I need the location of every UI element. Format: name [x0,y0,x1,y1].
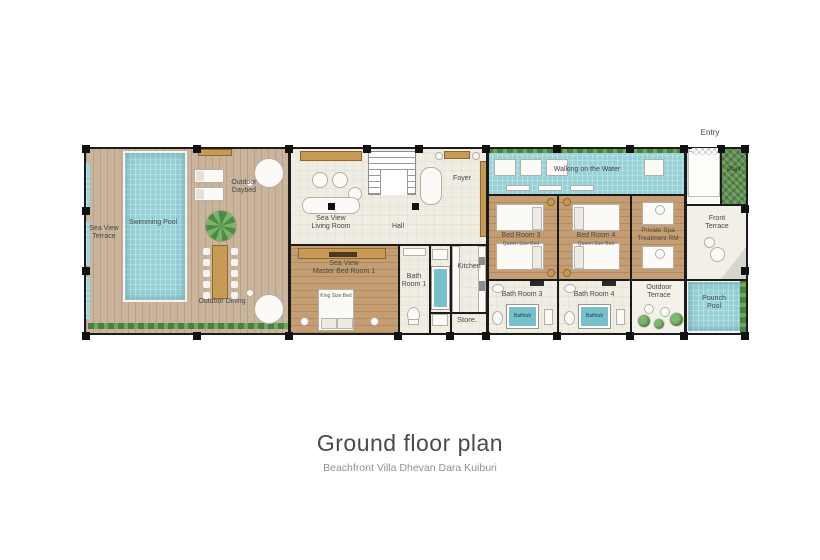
private-spa-line2: Treatment RM [634,235,682,243]
bedroom3-bed-label: Queen Size Bed [492,242,550,248]
hedge-top [487,149,684,153]
caption-block: Ground floor plan Beachfront Villa Dheva… [0,430,820,474]
private-spa-line1: Private Spa [634,227,682,235]
pounch-pool-label: Pounch Pool [690,295,738,312]
master-bedroom-label: Sea View Master Bed Room 1 [292,260,396,277]
front-terrace-line2: Terrace [692,223,742,231]
column-icon [412,203,419,210]
bathtub-text: Bathtub [509,314,536,320]
bedside-table-icon [563,269,571,277]
plant-bed [722,149,746,205]
foyer-cabinet-icon [444,151,470,159]
front-terrace-line1: Front [692,215,742,223]
floor-plan-page: Entry Swimming Pool Sea View Terrace Out… [0,0,820,560]
bathtub-label: Bathtub [509,314,536,320]
kitchen-counter-left-icon [452,246,460,314]
bath4-label: Bath Room 4 [564,291,624,299]
water-mat-icon [570,185,594,191]
outdoor-terrace-label: Outdoor Terrace [634,284,684,301]
shower-icon [544,309,553,325]
plant-text: Plant [722,167,746,174]
king-bed-text: King Size Bed [320,294,352,300]
wall [430,312,487,314]
door-leaf-icon [602,281,616,286]
plant-pot-icon [654,319,664,329]
shower-icon [432,249,448,260]
bedroom3-bed-text: Queen Size Bed [492,242,550,248]
wall [557,195,559,333]
bathtub-icon [432,267,449,309]
vanity-icon [403,248,426,256]
plant-pot-icon [670,313,683,326]
face-hole [655,249,665,259]
console-cabinet-icon [300,151,362,161]
sea-view-terrace-label: Sea View Terrace [87,225,121,242]
sun-lounger-icon [194,187,224,201]
wall [486,279,746,281]
floor-plan: Swimming Pool Sea View Terrace Outdoor D… [84,147,748,335]
wardrobe-detail [329,252,357,257]
walking-on-water-text: Walking on the Water [534,166,640,174]
wall [684,149,687,333]
living-room-line1: Sea View [296,215,366,223]
entry-platform [688,151,720,197]
store-text: Store. [446,315,488,324]
wall [486,149,489,333]
wardrobe-icon [298,248,386,259]
dining-table-icon [212,245,228,299]
swimming-pool-text: Swimming Pool [121,219,185,227]
face-hole [655,205,665,215]
terrace-chair-icon [660,307,670,317]
plant-label: Plant [722,167,746,174]
armchair-icon [332,172,348,188]
pounch-pool-line1: Pounch [690,295,738,303]
column-icon [328,203,335,210]
bathtub-icon: Bathtub [579,305,610,328]
wall [720,149,722,205]
hedge-right [740,280,746,333]
front-terrace-label: Front Terrace [692,215,742,232]
pillow [321,318,337,329]
hall-text: Hall [380,223,416,231]
living-room-line2: Living Room [296,223,366,231]
bedside-table-icon [563,198,571,206]
stair-landing [380,170,408,195]
armchair-icon [312,172,328,188]
page-title: Ground floor plan [0,430,820,457]
kitchen-text: Kitchen [450,263,488,271]
water-mat-icon [506,185,530,191]
terrace-chair-icon [710,247,725,262]
terrace-chair-icon [644,304,654,314]
bedroom4-label: Bed Room 4 [567,232,625,240]
refrigerator-icon [479,281,485,291]
lounger-pillow [196,189,204,199]
shower-icon [616,309,625,325]
wall [630,195,632,333]
staircase [368,151,416,195]
round-daybed-icon [254,294,284,324]
outdoor-daybed-label: Outdoor Daybed [224,179,264,196]
foyer-stool-icon [435,152,443,160]
bedroom4-bed-text: Queen Size Bed [567,242,625,248]
pillow [574,207,584,230]
stool-icon [370,317,379,326]
outdoor-daybed-line2: Daybed [224,187,264,195]
bath3-label: Bath Room 3 [492,291,552,299]
master-bedroom-line1: Sea View [292,260,396,268]
foyer-stool-icon [472,152,480,160]
wall [684,204,746,206]
window-strip [86,163,90,207]
massage-bed-icon [642,202,674,225]
bath1-line2: Room 1 [398,281,430,289]
queen-bed-icon [496,204,544,231]
bath1-label: Bath Room 1 [398,273,430,290]
bedroom3-label: Bed Room 3 [492,232,550,240]
queen-bed-icon [572,204,620,231]
door-leaf-icon [530,281,544,286]
stool-icon [300,317,309,326]
king-bed-icon: King Size Bed [318,289,354,331]
lounger-pillow [196,171,204,181]
bath4-text: Bath Room 4 [564,291,624,299]
entry-label: Entry [688,128,732,138]
outdoor-terrace-line2: Terrace [634,292,684,300]
bedroom4-text: Bed Room 4 [567,232,625,240]
side-stool-icon [246,289,254,297]
swimming-pool-label: Swimming Pool [121,219,185,227]
wall [288,244,488,246]
outdoor-dining-text: Outdoor Dining [190,298,254,306]
structural-columns [82,145,90,153]
private-spa-label: Private Spa Treatment RM [634,227,682,243]
toilet-tank [408,319,419,325]
foyer-text: Foyer [440,175,484,183]
stepping-stone-icon [644,159,664,176]
bar-counter-icon [198,149,232,156]
entry-tiles [692,148,718,155]
dining-chairs-left-icon [203,248,210,255]
terrace-chair-icon [704,237,715,248]
sea-view-terrace-line1: Sea View [87,225,121,233]
outdoor-dining-label: Outdoor Dining [190,298,254,306]
pillow [337,318,353,329]
foyer-label: Foyer [440,175,484,183]
bedroom4-bed-label: Queen Size Bed [567,242,625,248]
bath3-text: Bath Room 3 [492,291,552,299]
bathtub-icon: Bathtub [507,305,538,328]
hall-label: Hall [380,223,416,231]
stepping-stone-icon [494,159,516,176]
bedside-table-icon [547,198,555,206]
kitchen-label: Kitchen [450,263,488,271]
bathtub-text: Bathtub [581,314,608,320]
palm-tree-icon [206,211,236,241]
massage-bed-icon [642,246,674,269]
living-room-label: Sea View Living Room [296,215,366,232]
pillow [574,246,584,269]
page-subtitle: Beachfront Villa Dhevan Dara Kuiburi [0,462,820,474]
pillow [532,246,542,269]
window-strip [86,277,90,319]
wall [288,149,291,333]
water-mat-icon [538,185,562,191]
sea-view-terrace-line2: Terrace [87,233,121,241]
sun-lounger-icon [194,169,224,183]
store-label: Store. [446,315,488,324]
dining-chairs-right-icon [231,248,238,255]
toilet-icon [492,311,503,325]
chaise-icon [420,167,442,205]
master-bedroom-line2: Master Bed Room 1 [292,268,396,276]
king-bed-label: King Size Bed [320,294,352,300]
pillow [532,207,542,230]
bath1-line1: Bath [398,273,430,281]
wall [486,194,686,196]
pounch-pool-line2: Pool [690,303,738,311]
hedge-strip [88,323,288,329]
walking-on-water-label: Walking on the Water [534,166,640,174]
outdoor-daybed-line1: Outdoor [224,179,264,187]
bathtub-label: Bathtub [581,314,608,320]
entry-text: Entry [688,128,732,138]
bedroom3-text: Bed Room 3 [492,232,550,240]
outdoor-terrace-line1: Outdoor [634,284,684,292]
bedside-table-icon [547,269,555,277]
plant-pot-icon [638,315,650,327]
toilet-icon [564,311,575,325]
